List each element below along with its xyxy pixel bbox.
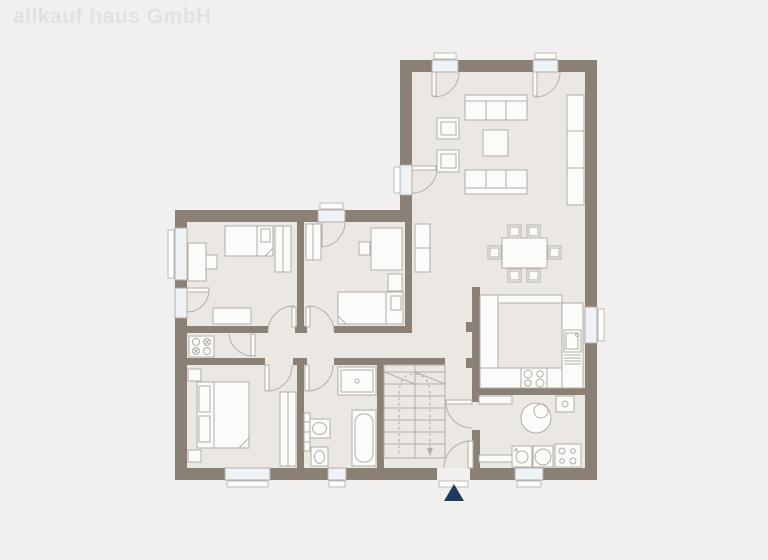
bathroom-window bbox=[328, 468, 346, 487]
washbasin bbox=[309, 419, 330, 438]
wardrobe-master bbox=[280, 392, 296, 466]
laundry-appliance bbox=[555, 444, 581, 467]
armchair-2 bbox=[437, 150, 459, 172]
dryer bbox=[533, 446, 553, 467]
cooktop bbox=[521, 368, 547, 388]
radiator bbox=[304, 413, 310, 451]
coffee-table bbox=[483, 130, 508, 156]
dresser-1 bbox=[213, 308, 251, 324]
bed-single-2 bbox=[338, 292, 403, 324]
kitchen-window bbox=[585, 307, 604, 343]
floor-plan-canvas: allkauf haus GmbH bbox=[0, 0, 768, 560]
bedroom1-window bbox=[168, 228, 187, 280]
corridor-cabinet bbox=[415, 224, 430, 272]
cooktop-unit bbox=[189, 336, 214, 357]
bed-single-1 bbox=[225, 226, 273, 256]
washing-machine bbox=[512, 446, 532, 467]
armchair-1 bbox=[437, 118, 459, 139]
kitchen-counter-left bbox=[480, 295, 498, 368]
floor-plan-drawing bbox=[0, 0, 768, 560]
bathtub bbox=[352, 410, 376, 466]
wardrobe-1 bbox=[275, 226, 291, 272]
cabinet-2 bbox=[388, 274, 402, 291]
double-bed bbox=[197, 382, 249, 448]
dining-table bbox=[502, 238, 547, 268]
toilet bbox=[311, 447, 328, 466]
utility-shelf bbox=[479, 396, 512, 404]
nightstand-bottom bbox=[188, 450, 201, 462]
nightstand-top bbox=[188, 369, 201, 381]
sofa-bottom bbox=[465, 170, 527, 194]
utility-window bbox=[515, 468, 543, 487]
utility-bench bbox=[479, 455, 512, 462]
storage-niche bbox=[189, 336, 214, 357]
shower bbox=[338, 367, 376, 395]
wall-shelf bbox=[567, 95, 584, 205]
sofa-top bbox=[465, 95, 527, 120]
utility-fixture bbox=[556, 396, 574, 412]
boiler bbox=[521, 403, 551, 433]
master-bedroom-window bbox=[225, 468, 270, 487]
wardrobe-2 bbox=[306, 224, 321, 260]
